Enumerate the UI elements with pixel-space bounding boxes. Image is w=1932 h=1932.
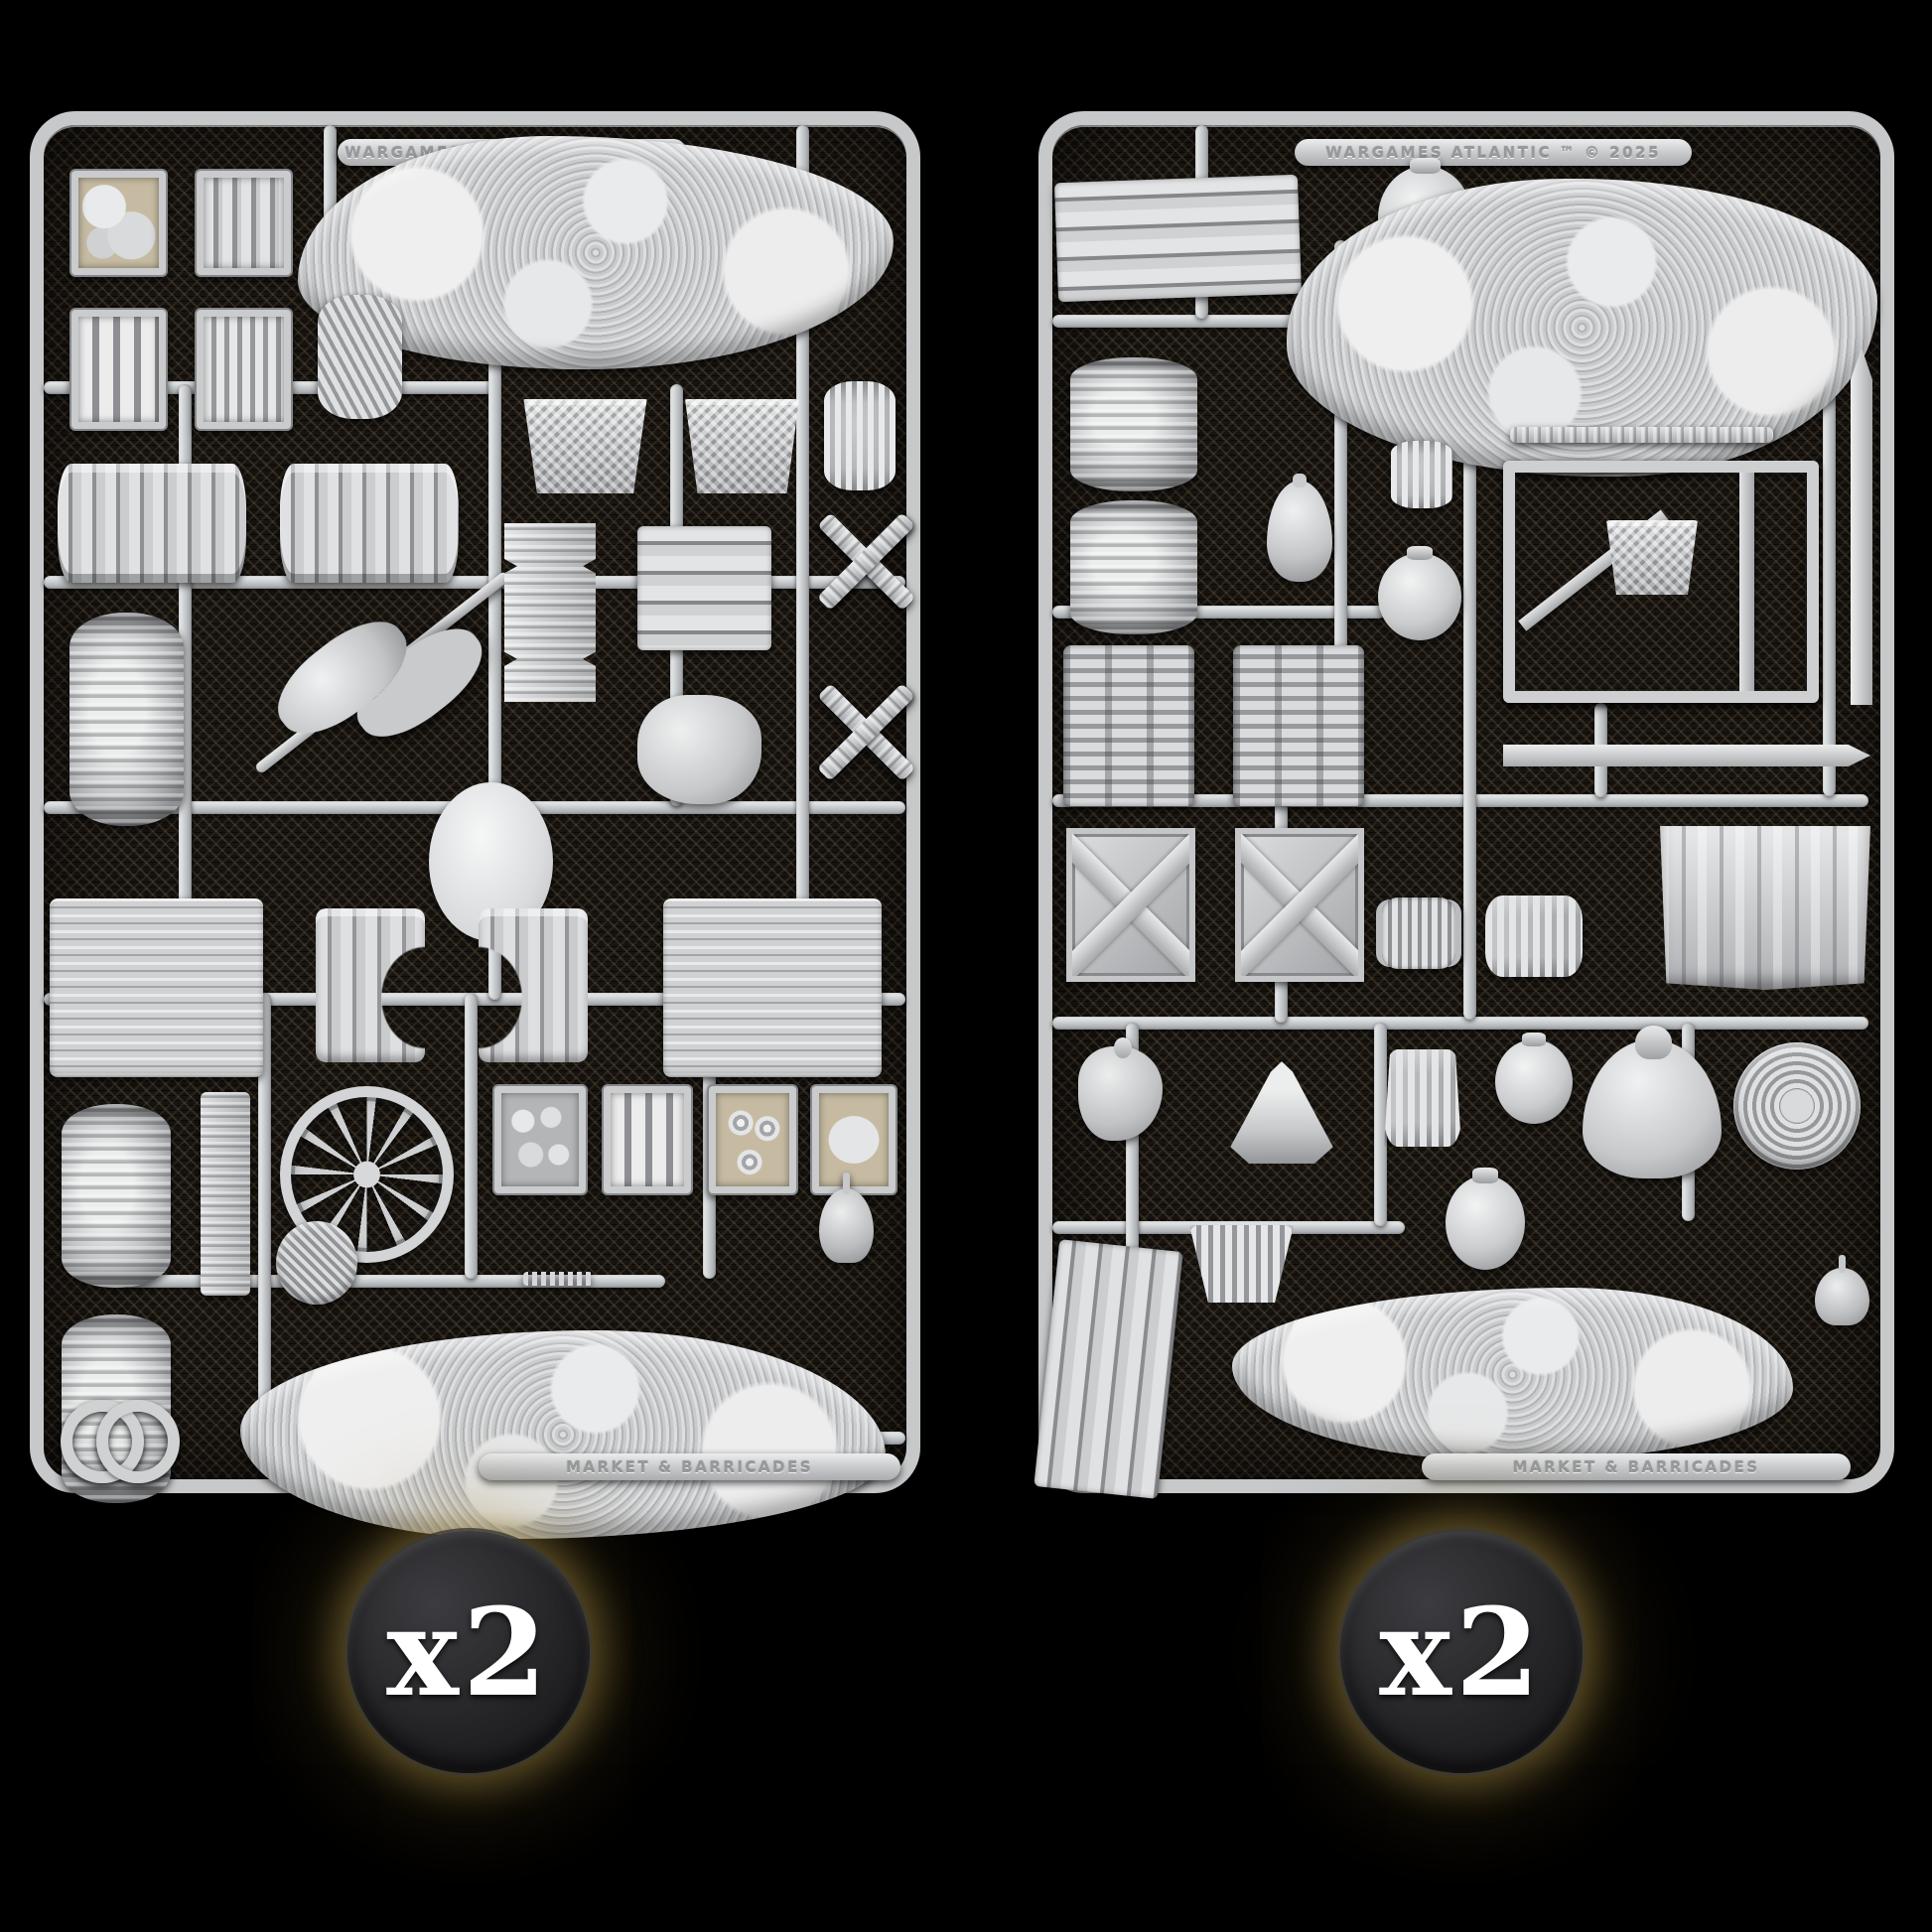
sprue-runner xyxy=(1374,1023,1387,1226)
sprue-label-bottom: MARKET & BARRICADES xyxy=(479,1453,900,1480)
round-pot xyxy=(1446,1175,1525,1270)
ribbed-basket xyxy=(1384,1049,1461,1147)
food-tray-bread xyxy=(604,1086,691,1193)
food-tray-stones xyxy=(494,1086,586,1193)
sprue-runner xyxy=(465,993,478,1279)
woven-basket xyxy=(518,399,652,493)
food-tray-roses xyxy=(709,1086,796,1193)
wooden-plank xyxy=(201,1092,250,1296)
ribbed-planter xyxy=(1485,896,1583,977)
quantity-label-left: x2 xyxy=(386,1591,551,1713)
rolled-bale xyxy=(318,295,402,419)
food-tray-meat xyxy=(71,171,166,275)
small-ribbed-barrel xyxy=(1391,441,1452,508)
barrel xyxy=(1070,500,1197,634)
sprue-label-bottom: MARKET & BARRICADES xyxy=(1422,1453,1851,1480)
sprue-right: WARGAMES ATLANTIC ™ © 2025MARKET & BARRI… xyxy=(1038,111,1894,1493)
wattle-fence-section xyxy=(1233,645,1364,806)
food-tray-goose xyxy=(812,1086,896,1193)
food-tray-carrots xyxy=(197,310,291,429)
trestle-support xyxy=(479,908,588,1062)
small-mace xyxy=(1815,1268,1869,1325)
sprue-left: WARGAMES ATLANTIC ™ © 2025MARKET & BARRI… xyxy=(30,111,920,1493)
food-tray-bread xyxy=(71,310,166,429)
large-barrel xyxy=(69,613,184,826)
quantity-badge-right: x2 xyxy=(1340,1531,1583,1773)
rope-knot xyxy=(58,1390,182,1469)
sprue-runner xyxy=(1823,354,1836,796)
pulley-block xyxy=(1382,897,1455,969)
barrel xyxy=(1070,357,1197,491)
quantity-label-right: x2 xyxy=(1379,1591,1544,1713)
round-pot xyxy=(1495,1039,1573,1124)
sprue-label-top: WARGAMES ATLANTIC ™ © 2025 xyxy=(1295,139,1692,166)
sprue-runner xyxy=(1052,1017,1868,1030)
round-pot xyxy=(1378,553,1461,640)
spear xyxy=(1851,347,1872,705)
wooden-plank xyxy=(1510,427,1773,443)
woven-basket xyxy=(680,399,804,493)
crate xyxy=(1235,828,1364,982)
crossed-barricade xyxy=(812,508,919,616)
coiled-basket xyxy=(1733,1042,1861,1170)
herb-sprig xyxy=(518,1255,598,1305)
rope-coil xyxy=(276,1221,357,1305)
quantity-badge-left: x2 xyxy=(347,1531,590,1773)
food-tray-fish xyxy=(197,171,291,275)
crossed-barricade xyxy=(812,679,919,786)
product-photo-stage: WARGAMES ATLANTIC ™ © 2025MARKET & BARRI… xyxy=(0,0,1932,1932)
spear xyxy=(1503,745,1870,766)
ribbed-barrel xyxy=(824,381,896,490)
crate xyxy=(1066,828,1195,982)
cloth-spool xyxy=(504,523,596,702)
barrel xyxy=(62,1104,171,1288)
plank-stack xyxy=(1054,175,1302,302)
wattle-fence-section xyxy=(1063,645,1194,806)
trestle-support xyxy=(316,908,425,1062)
plank-bundle xyxy=(1034,1239,1182,1499)
wooden-board xyxy=(663,898,882,1077)
woven-basket xyxy=(1602,520,1702,595)
cloth-bundle xyxy=(637,695,761,804)
rocky-terrain-base xyxy=(240,1330,886,1539)
picket-fence-section xyxy=(58,464,246,583)
plank-stack xyxy=(637,526,771,650)
stall-canopy xyxy=(1660,826,1870,990)
wooden-board xyxy=(50,898,263,1077)
